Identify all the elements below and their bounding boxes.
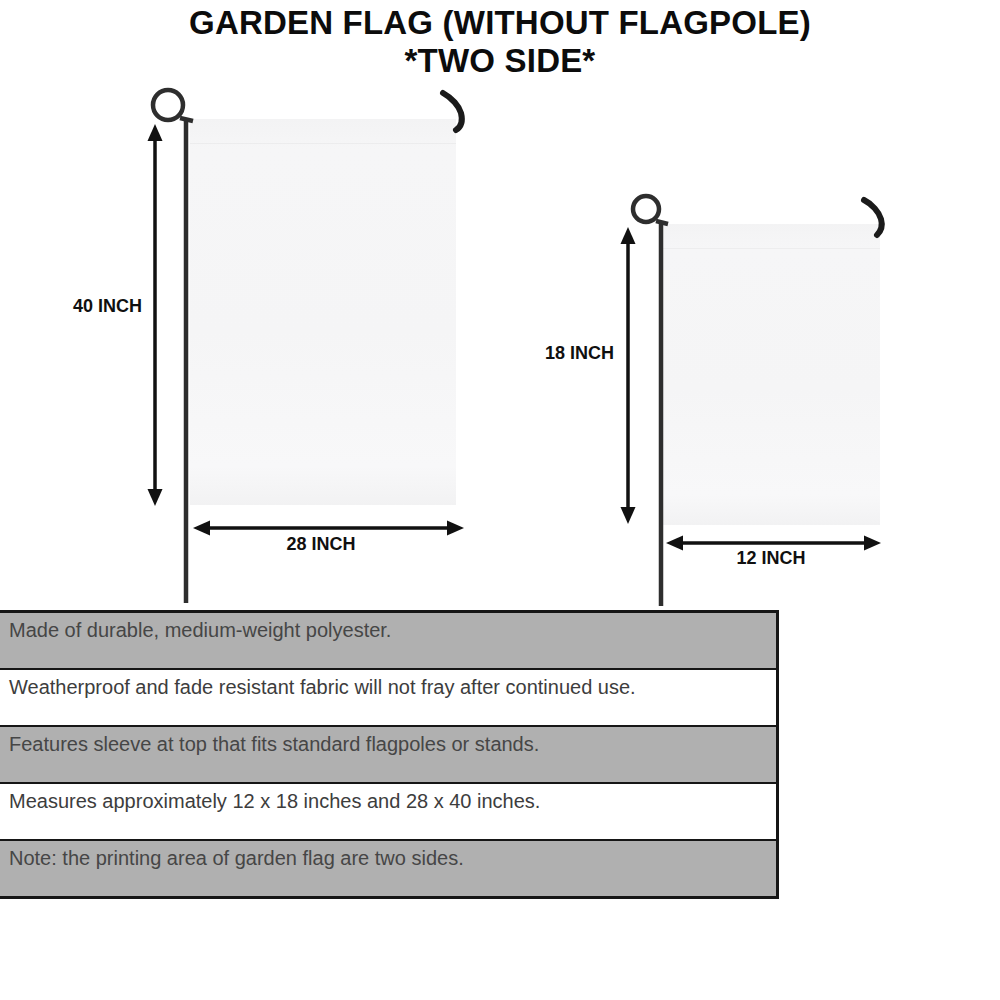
large-flagpole-icon xyxy=(153,90,193,603)
garden-flag-infographic: GARDEN FLAG (WITHOUT FLAGPOLE) *TWO SIDE… xyxy=(0,0,1000,1000)
feature-row-measures: Measures approximately 12 x 18 inches an… xyxy=(0,782,776,839)
feature-row-polyester: Made of durable, medium-weight polyester… xyxy=(0,613,776,668)
small-flag-width-label: 12 INCH xyxy=(691,548,851,569)
title-line-1: GARDEN FLAG (WITHOUT FLAGPOLE) xyxy=(0,4,1000,42)
feature-text: Measures approximately 12 x 18 inches an… xyxy=(9,790,540,812)
feature-row-sleeve: Features sleeve at top that fits standar… xyxy=(0,725,776,782)
feature-row-weatherproof: Weatherproof and fade resistant fabric w… xyxy=(0,668,776,725)
title-line-2: *TWO SIDE* xyxy=(0,42,1000,80)
large-flag-height-label: 40 INCH xyxy=(56,296,142,317)
small-flag-panel xyxy=(662,224,880,525)
feature-table: Made of durable, medium-weight polyester… xyxy=(0,610,779,899)
large-flag-width-label: 28 INCH xyxy=(241,534,401,555)
large-flag-panel xyxy=(190,119,456,505)
feature-row-note: Note: the printing area of garden flag a… xyxy=(0,839,776,896)
feature-text: Made of durable, medium-weight polyester… xyxy=(9,619,391,641)
page-title: GARDEN FLAG (WITHOUT FLAGPOLE) *TWO SIDE… xyxy=(0,4,1000,80)
small-flag-height-label: 18 INCH xyxy=(528,343,614,364)
feature-text: Features sleeve at top that fits standar… xyxy=(9,733,539,755)
feature-text: Weatherproof and fade resistant fabric w… xyxy=(9,676,636,698)
small-flag-height-arrow xyxy=(621,227,636,524)
feature-text: Note: the printing area of garden flag a… xyxy=(9,847,464,869)
large-flag-height-arrow xyxy=(148,124,163,506)
